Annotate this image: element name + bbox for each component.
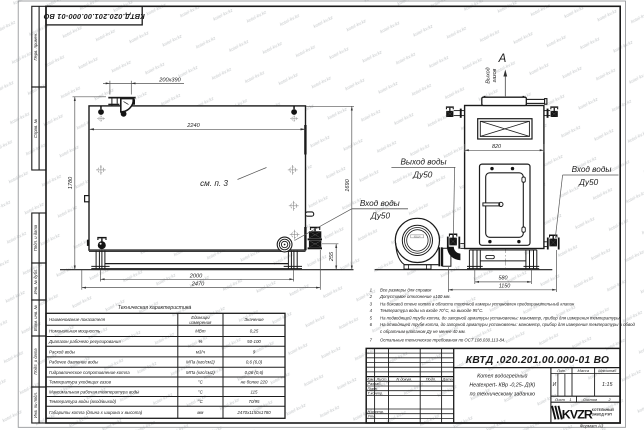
svg-text:с обратным клапаном Ду не мен: с обратным клапаном Ду не менее 40 мм.	[380, 329, 466, 334]
svg-text:МВт: МВт	[195, 329, 206, 334]
svg-text:Вход воды: Вход воды	[360, 199, 400, 208]
svg-text:Инв. № подл.: Инв. № подл.	[33, 392, 38, 418]
svg-text:2000: 2000	[189, 273, 203, 279]
svg-text:200х390: 200х390	[158, 77, 181, 83]
svg-text:°С: °С	[198, 380, 204, 385]
svg-text:°С: °С	[198, 389, 204, 394]
svg-text:2240: 2240	[186, 123, 200, 129]
svg-text:МПа (кгс/см2): МПа (кгс/см2)	[186, 360, 215, 365]
svg-text:Heatexpert- КВр -0,25- Д(К): Heatexpert- КВр -0,25- Д(К)	[469, 383, 535, 389]
svg-text:Подп.: Подп.	[426, 376, 436, 381]
svg-text:1: 1	[569, 397, 571, 402]
svg-text:не более 220: не более 220	[241, 380, 268, 385]
svg-text:Масса: Масса	[578, 368, 590, 373]
svg-text:Листов: Листов	[582, 397, 597, 402]
svg-text:0,06 (0,6): 0,06 (0,6)	[245, 370, 264, 375]
svg-text:Взам. инв. №: Взам. инв. №	[33, 305, 38, 331]
svg-text:Значение: Значение	[244, 317, 264, 322]
svg-text:Ду50: Ду50	[412, 171, 433, 180]
svg-text:Лит.: Лит.	[556, 368, 566, 373]
svg-text:Дата: Дата	[441, 376, 453, 381]
svg-text:Перв. примен.: Перв. примен.	[33, 33, 38, 61]
svg-text:70/95: 70/95	[249, 399, 261, 404]
svg-text:Диапазон рабочего регулировани: Диапазон рабочего регулирования	[48, 339, 121, 344]
svg-text:Расход воды: Расход воды	[49, 349, 76, 354]
svg-text:1690: 1690	[345, 178, 351, 191]
svg-text:Вход воды: Вход воды	[572, 165, 612, 174]
svg-text:1:15: 1:15	[602, 382, 613, 388]
svg-text:Техническая характеристика: Техническая характеристика	[118, 305, 192, 311]
svg-text:Температура уходящих газов: Температура уходящих газов	[49, 380, 112, 385]
svg-text:Наименование показателя: Наименование показателя	[49, 317, 106, 322]
svg-text:КВТД .020.201.00.000-01 ВО: КВТД .020.201.00.000-01 ВО	[466, 355, 609, 366]
svg-text:50-100: 50-100	[247, 339, 261, 344]
svg-text:Все размеры для справок: Все размеры для справок	[380, 288, 432, 293]
svg-text:газов: газов	[492, 68, 498, 82]
svg-text:1150: 1150	[499, 283, 511, 289]
svg-text:На отводящей трубе котла, до з: На отводящей трубе котла, до запорной ар…	[380, 322, 636, 327]
svg-text:Максимальная рабочая температу: Максимальная рабочая температура воды	[49, 389, 140, 394]
svg-text:0,6 (6,0): 0,6 (6,0)	[246, 360, 263, 365]
svg-text:Котел водогрейный: Котел водогрейный	[477, 373, 527, 380]
svg-text:N докум.: N докум.	[396, 376, 412, 381]
svg-text:Выход воды: Выход воды	[400, 158, 446, 167]
svg-text:Справ. №: Справ. №	[33, 119, 38, 138]
svg-text:Т.контр.: Т.контр.	[368, 391, 384, 396]
svg-text:КВЦ4: КВЦ4	[414, 234, 421, 238]
svg-text:ЗАВОД РЭП: ЗАВОД РЭП	[592, 413, 613, 417]
svg-text:255: 255	[329, 251, 335, 262]
svg-text:Ду50: Ду50	[578, 178, 599, 187]
svg-text:Подп. и дата: Подп. и дата	[33, 348, 38, 375]
svg-text:820: 820	[492, 144, 501, 150]
svg-text:580: 580	[499, 276, 508, 282]
svg-text:Допустимое отклонение ±100 мм: Допустимое отклонение ±100 мм.	[379, 294, 451, 299]
svg-text:А: А	[498, 53, 507, 65]
svg-text:мм: мм	[197, 410, 203, 415]
svg-text:Инв. № дубл.: Инв. № дубл.	[33, 269, 38, 295]
svg-text:КОТЕЛЬНЫЙ: КОТЕЛЬНЫЙ	[592, 408, 615, 412]
svg-text:измерения: измерения	[189, 320, 212, 325]
svg-text:%: %	[198, 339, 202, 344]
svg-text:°С: °С	[198, 399, 204, 404]
svg-text:Масштаб: Масштаб	[598, 368, 617, 373]
svg-text:На подводящей трубе котла, до: На подводящей трубе котла, до запорной а…	[380, 316, 621, 321]
svg-text:115: 115	[251, 389, 259, 394]
svg-text:И: И	[553, 382, 557, 388]
svg-text:Номинальная мощность: Номинальная мощность	[49, 329, 101, 334]
svg-text:МПа (кгс/см2): МПа (кгс/см2)	[186, 370, 215, 375]
svg-text:KVZR: KVZR	[562, 407, 593, 421]
svg-text:Габариты котла (длина х ширина: Габариты котла (длина х ширина х высота)	[49, 410, 143, 415]
svg-text:Ду50: Ду50	[370, 212, 391, 221]
svg-text:по техническому заданию: по техническому заданию	[470, 392, 535, 398]
svg-text:КВТД.020.201.00.000-01 ВО: КВТД.020.201.00.000-01 ВО	[43, 12, 144, 21]
svg-text:Лист: Лист	[554, 397, 566, 402]
svg-text:Остальные технические требован: Остальные технические требования по ОСТ …	[380, 338, 506, 343]
svg-text:Формат А3: Формат А3	[580, 423, 604, 428]
svg-text:см. п. 3: см. п. 3	[200, 179, 228, 188]
svg-text:2470: 2470	[191, 282, 205, 288]
svg-text:Утв.: Утв.	[368, 414, 377, 419]
svg-text:м3/ч: м3/ч	[196, 349, 206, 354]
svg-text:Температура воды на входе 70°: Температура воды на входе 70°С, на выход…	[380, 308, 483, 313]
svg-text:Рабочее давление воды: Рабочее давление воды	[49, 360, 99, 365]
svg-text:2470х1150х1780: 2470х1150х1780	[236, 410, 271, 415]
svg-text:1780: 1780	[68, 176, 74, 189]
svg-text:Подп. и дата: Подп. и дата	[33, 224, 38, 251]
svg-text:0,25: 0,25	[250, 329, 259, 334]
svg-text:Гидравлическое сопротивление к: Гидравлическое сопротивление котла	[49, 370, 130, 375]
svg-text:Температура воды (вход/выход): Температура воды (вход/выход)	[49, 399, 117, 404]
svg-text:На боковой стене котла в облас: На боковой стене котла в области топочно…	[380, 302, 575, 307]
svg-text:Выход: Выход	[486, 67, 492, 83]
